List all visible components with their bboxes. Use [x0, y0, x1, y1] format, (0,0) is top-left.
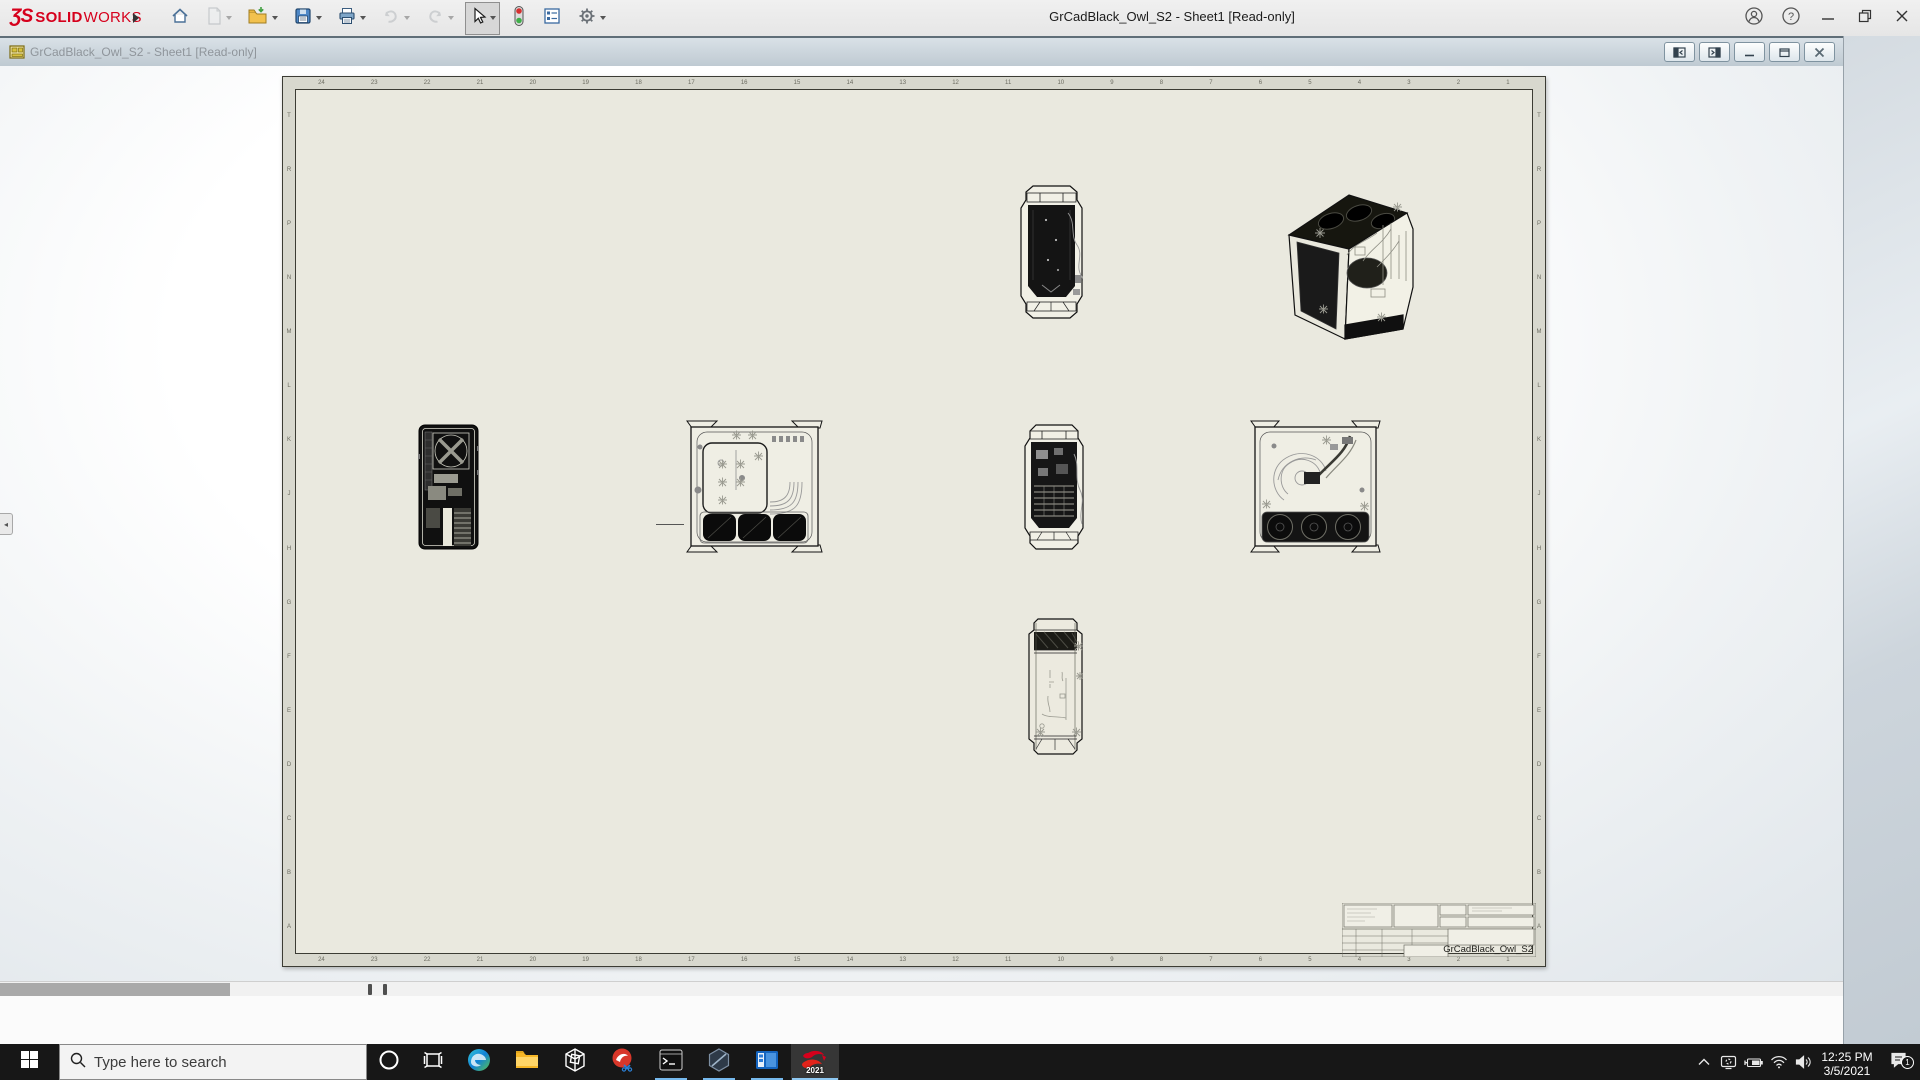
close-icon: [1895, 9, 1909, 28]
taskbar-empty-space: [839, 1044, 1691, 1080]
doc-minimize-button[interactable]: [1734, 42, 1765, 62]
zone-label: T: [1537, 113, 1541, 119]
taskbar-app-remote-window[interactable]: [743, 1044, 791, 1080]
zone-label: T: [287, 113, 291, 119]
screen: ƷS SOLID WORKS: [0, 0, 1920, 1080]
zone-label: A: [1537, 924, 1541, 930]
zone-label: 3: [1407, 80, 1410, 86]
zone-label: 23: [371, 80, 378, 86]
options-button[interactable]: [573, 2, 610, 35]
capture-tool-icon: [610, 1047, 636, 1078]
doc-restore-button[interactable]: [1769, 42, 1800, 62]
zone-label: 11: [1005, 957, 1011, 963]
zone-label: 16: [741, 80, 748, 86]
drawing-view-front-top[interactable]: [1020, 185, 1083, 319]
select-cursor-icon: [469, 6, 487, 31]
zone-label: 8: [1160, 80, 1163, 86]
account-button[interactable]: [1735, 0, 1772, 36]
zone-label: 15: [794, 80, 801, 86]
taskbar-app-command-prompt[interactable]: [647, 1044, 695, 1080]
3d-viewer-icon: [562, 1047, 588, 1078]
connect-display-icon[interactable]: [1716, 1044, 1741, 1080]
zone-label: 8: [1160, 957, 1163, 963]
zone-numbers-top: 242322212019181716151413121110987654321: [295, 77, 1533, 89]
zone-label: 1: [1506, 957, 1509, 963]
taskbar-app-3d-viewer[interactable]: [551, 1044, 599, 1080]
undo-icon: [381, 7, 401, 30]
rebuild-button[interactable]: [507, 1, 531, 36]
task-view-button[interactable]: [411, 1044, 455, 1080]
zone-letters-left: TRPNMLKJHGFEDCBA: [283, 89, 295, 954]
zone-label: 3: [1407, 957, 1410, 963]
cortana-icon: [378, 1049, 400, 1076]
zone-label: 12: [952, 80, 959, 86]
display-report-button[interactable]: [538, 2, 566, 35]
taskbar-app-edge[interactable]: [455, 1044, 503, 1080]
zone-label: 1: [1506, 80, 1509, 86]
task-view-icon: [423, 1051, 443, 1074]
windows-logo-icon: [21, 1051, 38, 1073]
zone-label: A: [287, 924, 291, 930]
close-button[interactable]: [1883, 0, 1920, 36]
scrollbar-thumb[interactable]: [0, 983, 230, 996]
solidworks-logo: ƷS SOLID WORKS: [10, 6, 142, 28]
minimize-button[interactable]: [1809, 0, 1846, 36]
document-window-bar: GrCadBlack_Owl_S2 - Sheet1 [Read-only]: [0, 36, 1843, 66]
zone-label: E: [287, 708, 291, 714]
zone-label: 6: [1259, 80, 1262, 86]
title-block: GrCadBlack_Owl_S2: [1342, 903, 1536, 957]
drawing-view-left-side[interactable]: [684, 420, 825, 553]
zone-label: 21: [477, 80, 484, 86]
document-title: GrCadBlack_Owl_S2 - Sheet1 [Read-only]: [30, 45, 257, 59]
taskbar-app-capture-tool[interactable]: [599, 1044, 647, 1080]
zone-label: 20: [529, 957, 536, 963]
svg-text:?: ?: [1787, 11, 1793, 23]
drawing-document-icon: [9, 45, 25, 65]
solidworks-logo-glyph: ƷS: [10, 6, 32, 28]
pane-left-button[interactable]: [1664, 42, 1695, 62]
title-block-part-name: GrCadBlack_Owl_S2: [1443, 944, 1533, 955]
zone-label: P: [287, 221, 291, 227]
print-button[interactable]: [333, 2, 370, 35]
zone-label: 7: [1209, 80, 1212, 86]
zone-label: 13: [899, 957, 906, 963]
zone-label: J: [1538, 491, 1541, 497]
zone-label: 12: [952, 957, 959, 963]
zone-label: D: [1537, 762, 1541, 768]
graphics-viewport[interactable]: 242322212019181716151413121110987654321 …: [0, 66, 1843, 981]
account-icon: [1744, 6, 1764, 31]
zone-label: 22: [424, 957, 431, 963]
clock-time: 12:25 PM: [1816, 1050, 1878, 1064]
help-icon: ?: [1781, 6, 1801, 31]
volume-icon[interactable]: [1791, 1044, 1816, 1080]
drawing-view-isometric[interactable]: [1279, 189, 1417, 346]
display-report-icon: [542, 6, 562, 31]
zone-label: H: [287, 546, 291, 552]
undo-button: [377, 3, 414, 34]
zone-label: K: [1537, 437, 1541, 443]
select-tool-button[interactable]: [465, 2, 500, 35]
rebuild-stoplight-icon: [511, 5, 527, 32]
gear-icon: [577, 6, 597, 31]
zone-label: J: [288, 491, 291, 497]
zone-label: K: [287, 437, 291, 443]
hidden-icons-button[interactable]: [1691, 1044, 1716, 1080]
new-document-icon: [205, 6, 223, 31]
zone-label: 16: [741, 957, 748, 963]
drawing-sheet[interactable]: 242322212019181716151413121110987654321 …: [282, 76, 1546, 967]
search-input[interactable]: [94, 1054, 334, 1071]
zone-label: C: [1537, 816, 1541, 822]
zone-label: B: [287, 870, 291, 876]
zone-corner: [1533, 77, 1545, 89]
pane-split-handle[interactable]: [383, 984, 387, 995]
zone-label: 11: [1005, 80, 1011, 86]
zone-label: 9: [1110, 80, 1113, 86]
home-icon: [170, 6, 190, 31]
zone-label: 7: [1209, 957, 1212, 963]
zone-label: H: [1537, 546, 1541, 552]
zone-label: F: [287, 654, 291, 660]
drawing-view-front-middle[interactable]: [1024, 424, 1084, 550]
zone-label: 6: [1259, 957, 1262, 963]
zone-label: N: [1537, 275, 1541, 281]
zone-label: 20: [529, 80, 536, 86]
window-controls: ?: [1735, 0, 1920, 36]
zone-label: 24: [318, 80, 325, 86]
centerline: [656, 524, 684, 525]
command-prompt-icon: [658, 1047, 684, 1078]
zone-label: 5: [1308, 80, 1311, 86]
taskbar-app-hex-tool[interactable]: [695, 1044, 743, 1080]
redo-button: [421, 3, 458, 34]
zone-label: L: [287, 383, 290, 389]
task-pane-strip: [1843, 36, 1920, 1044]
save-button[interactable]: [289, 2, 326, 35]
solidworks-icon: 2021: [800, 1047, 830, 1077]
zone-label: 10: [1057, 957, 1064, 963]
minimize-icon: [1821, 9, 1835, 28]
remote-window-icon: [754, 1047, 780, 1078]
restore-icon: [1858, 9, 1872, 28]
menu-flyout-arrow[interactable]: [133, 13, 139, 23]
cortana-button[interactable]: [367, 1044, 411, 1080]
zone-label: 5: [1308, 957, 1311, 963]
zone-label: B: [1537, 870, 1541, 876]
search-icon: [70, 1052, 86, 1073]
zone-label: 2: [1457, 957, 1460, 963]
zone-label: 2: [1457, 80, 1460, 86]
open-folder-icon: [247, 6, 269, 31]
zone-label: D: [287, 762, 291, 768]
zone-label: C: [287, 816, 291, 822]
zone-label: 23: [371, 957, 378, 963]
document-window-controls: [1664, 42, 1835, 62]
drawing-view-top[interactable]: [1028, 618, 1083, 755]
restore-button[interactable]: [1846, 0, 1883, 36]
zone-label: 14: [847, 957, 854, 963]
taskbar: 2021 12:25 PM 3/5/2021 1: [0, 1044, 1920, 1080]
taskbar-app-file-explorer[interactable]: [503, 1044, 551, 1080]
doc-close-button[interactable]: [1804, 42, 1835, 62]
zone-label: 4: [1358, 957, 1361, 963]
zone-label: 18: [635, 957, 642, 963]
zone-label: F: [1537, 654, 1541, 660]
zone-label: 14: [847, 80, 854, 86]
zone-label: M: [287, 329, 292, 335]
status-area: [0, 996, 1843, 1044]
zone-label: 22: [424, 80, 431, 86]
zone-label: 18: [635, 80, 642, 86]
zone-label: N: [287, 275, 291, 281]
zone-label: 24: [318, 957, 325, 963]
zone-label: E: [1537, 708, 1541, 714]
zone-label: L: [1537, 383, 1540, 389]
pane-right-button[interactable]: [1699, 42, 1730, 62]
new-document-button: [201, 2, 236, 35]
save-icon: [293, 6, 313, 31]
titlebar: ƷS SOLID WORKS: [0, 0, 1920, 36]
zone-label: 9: [1110, 957, 1113, 963]
zone-label: 19: [582, 80, 589, 86]
zone-label: G: [287, 600, 292, 606]
redo-icon: [425, 7, 445, 30]
drawing-view-rear[interactable]: [418, 424, 479, 550]
solidworks-year-badge: 2021: [800, 1066, 830, 1075]
zone-label: G: [1537, 600, 1542, 606]
home-button[interactable]: [166, 2, 194, 35]
zone-label: 17: [688, 80, 695, 86]
zone-label: 10: [1057, 80, 1064, 86]
zone-label: 21: [477, 957, 484, 963]
zone-label: 13: [899, 80, 906, 86]
featuremanager-collapse-tab[interactable]: ◂: [0, 513, 13, 535]
action-center-button[interactable]: 1: [1878, 1051, 1920, 1074]
taskbar-clock[interactable]: 12:25 PM 3/5/2021: [1816, 1046, 1878, 1078]
drawing-view-right-side[interactable]: [1248, 420, 1383, 553]
zone-corner: [283, 77, 295, 89]
notification-count-badge: 1: [1901, 1056, 1914, 1069]
start-button[interactable]: [0, 1044, 59, 1080]
hexagon-app-icon: [706, 1047, 732, 1078]
zone-label: 4: [1358, 80, 1361, 86]
open-button[interactable]: [243, 2, 282, 35]
clock-date: 3/5/2021: [1816, 1064, 1878, 1078]
quick-access-toolbar: [166, 0, 610, 36]
window-title: GrCadBlack_Owl_S2 - Sheet1 [Read-only]: [1049, 9, 1295, 24]
edge-icon: [466, 1047, 492, 1078]
zone-label: 15: [794, 957, 801, 963]
zone-label: R: [287, 167, 291, 173]
taskbar-app-solidworks[interactable]: 2021: [791, 1044, 839, 1080]
zone-label: 19: [582, 957, 589, 963]
system-tray: 12:25 PM 3/5/2021 1: [1691, 1044, 1920, 1080]
help-button[interactable]: ?: [1772, 0, 1809, 36]
zone-label: P: [1537, 221, 1541, 227]
horizontal-scrollbar[interactable]: [0, 981, 1843, 996]
battery-icon[interactable]: [1741, 1044, 1766, 1080]
print-icon: [337, 6, 357, 31]
taskbar-search[interactable]: [59, 1044, 367, 1080]
zone-label: 17: [688, 957, 695, 963]
zone-letters-right: TRPNMLKJHGFEDCBA: [1533, 89, 1545, 954]
wifi-icon[interactable]: [1766, 1044, 1791, 1080]
zone-label: M: [1537, 329, 1542, 335]
file-explorer-icon: [514, 1047, 540, 1078]
zone-corner: [283, 954, 295, 966]
zone-label: R: [1537, 167, 1541, 173]
pane-split-handle[interactable]: [368, 984, 372, 995]
